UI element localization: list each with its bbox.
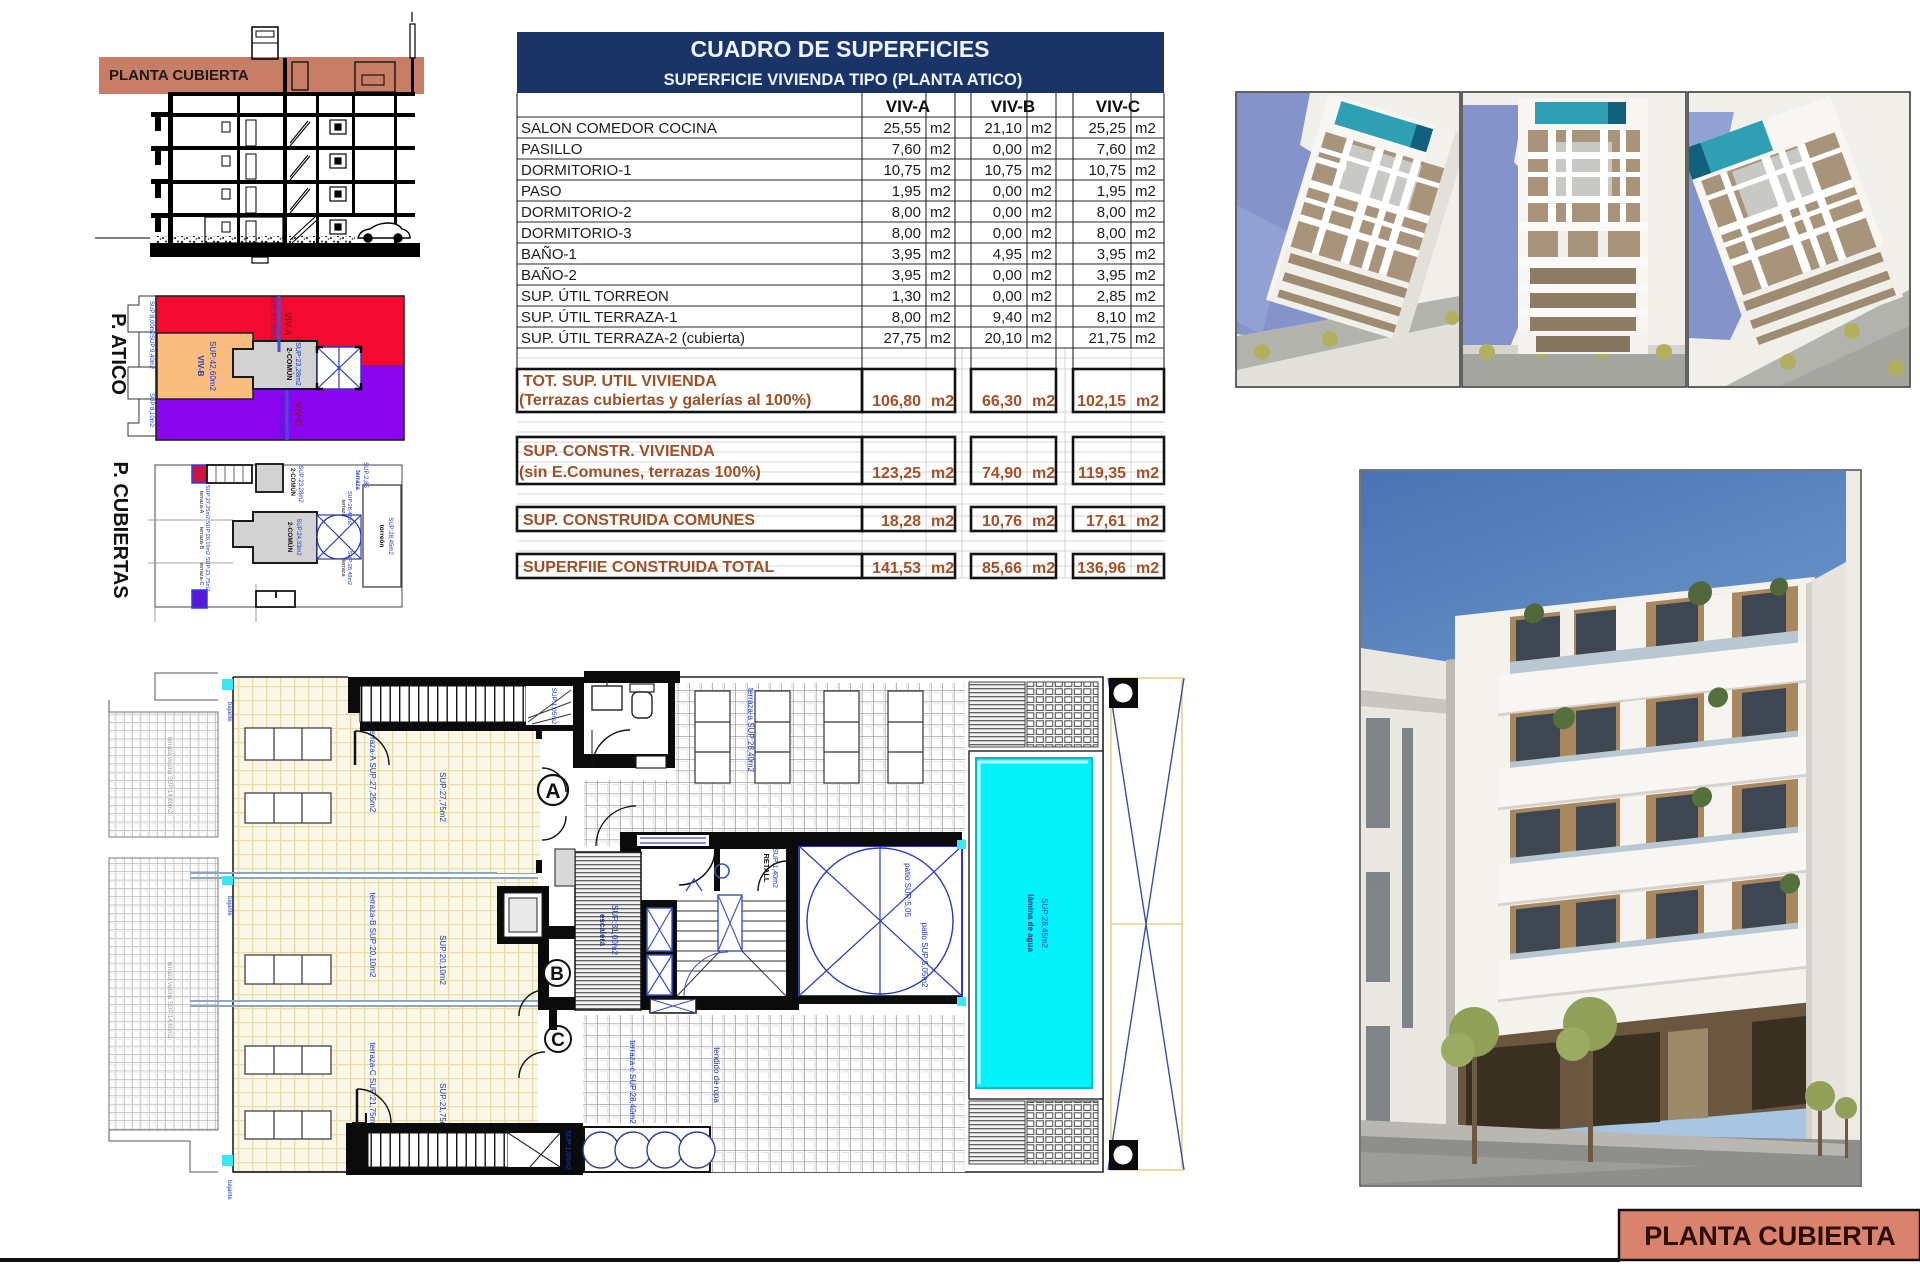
- svg-text:4,95: 4,95: [993, 246, 1022, 263]
- svg-text:SUP:1,05m2: SUP:1,05m2: [564, 1130, 571, 1170]
- svg-text:21,75: 21,75: [1088, 330, 1126, 347]
- svg-text:terraza-C SUP:21,75m2: terraza-C SUP:21,75m2: [368, 1042, 377, 1128]
- svg-text:SUP:63,05m2: SUP:63,05m2: [269, 296, 276, 340]
- svg-text:8,00: 8,00: [892, 225, 921, 242]
- svg-text:10,75: 10,75: [883, 162, 921, 179]
- svg-text:SUP. CONSTRUIDA COMUNES: SUP. CONSTRUIDA COMUNES: [523, 512, 755, 529]
- svg-text:SUP:27,75m2: SUP:27,75m2: [438, 772, 447, 822]
- svg-text:terraza: terraza: [340, 559, 346, 577]
- svg-text:m2: m2: [1135, 330, 1156, 347]
- svg-text:SUP. CONSTR. VIVIENDA: SUP. CONSTR. VIVIENDA: [523, 443, 715, 460]
- svg-text:m2: m2: [1032, 560, 1055, 577]
- svg-text:m2: m2: [1032, 465, 1055, 482]
- svg-text:m2: m2: [1031, 246, 1052, 263]
- svg-text:SUP:21,75m2: SUP:21,75m2: [204, 557, 210, 591]
- svg-text:8,00: 8,00: [892, 309, 921, 326]
- svg-text:27,75: 27,75: [883, 330, 921, 347]
- svg-text:SUP. ÚTIL TERRAZA-1: SUP. ÚTIL TERRAZA-1: [521, 309, 677, 326]
- svg-text:PASO: PASO: [521, 183, 562, 200]
- svg-text:VIV-C: VIV-C: [293, 402, 303, 426]
- svg-text:terraza vecina SUP:14,60m2: terraza vecina SUP:14,60m2: [166, 737, 172, 814]
- svg-text:DORMITORIO-3: DORMITORIO-3: [521, 225, 632, 242]
- svg-text:m2: m2: [930, 309, 951, 326]
- svg-text:1,30: 1,30: [892, 288, 921, 305]
- svg-text:DORMITORIO-2: DORMITORIO-2: [521, 204, 632, 221]
- svg-text:m2: m2: [930, 204, 951, 221]
- svg-text:(sin E.Comunes, terrazas 100%): (sin E.Comunes, terrazas 100%): [519, 464, 761, 481]
- svg-text:m2: m2: [930, 246, 951, 263]
- svg-text:0,00: 0,00: [993, 225, 1022, 242]
- svg-text:VIV-A: VIV-A: [886, 97, 930, 116]
- svg-text:C: C: [551, 1030, 565, 1051]
- svg-text:74,90: 74,90: [982, 465, 1022, 482]
- svg-text:bajante: bajante: [226, 702, 232, 722]
- svg-text:m2: m2: [930, 330, 951, 347]
- svg-text:8,00: 8,00: [892, 204, 921, 221]
- svg-text:17,61: 17,61: [1086, 513, 1126, 530]
- svg-text:20,10: 20,10: [984, 330, 1022, 347]
- svg-text:m2: m2: [1031, 267, 1052, 284]
- svg-text:m2: m2: [1032, 513, 1055, 530]
- svg-text:3,95: 3,95: [1097, 267, 1126, 284]
- svg-text:m2: m2: [1031, 204, 1052, 221]
- svg-text:SUPERFIIE CONSTRUIDA TOTAL: SUPERFIIE CONSTRUIDA TOTAL: [523, 559, 774, 576]
- svg-text:0,00: 0,00: [993, 141, 1022, 158]
- svg-text:m2: m2: [1135, 183, 1156, 200]
- svg-text:BAÑO-2: BAÑO-2: [521, 267, 577, 284]
- svg-text:SUP:1,40m2: SUP:1,40m2: [771, 848, 778, 888]
- svg-text:TOT. SUP. UTIL VIVIENDA: TOT. SUP. UTIL VIVIENDA: [523, 373, 717, 390]
- svg-text:m2: m2: [1135, 120, 1156, 137]
- svg-text:25,25: 25,25: [1088, 120, 1126, 137]
- svg-text:m2: m2: [1031, 225, 1052, 242]
- svg-text:1,95: 1,95: [1097, 183, 1126, 200]
- svg-text:terraza-A SUP:27,25m2: terraza-A SUP:27,25m2: [368, 728, 377, 813]
- svg-text:VIV-A: VIV-A: [283, 312, 293, 336]
- svg-text:0,00: 0,00: [993, 183, 1022, 200]
- svg-text:3,95: 3,95: [1097, 246, 1126, 263]
- svg-text:m2: m2: [1031, 162, 1052, 179]
- svg-text:m2: m2: [930, 288, 951, 305]
- svg-text:VIV-B: VIV-B: [196, 356, 205, 377]
- svg-text:85,66: 85,66: [982, 560, 1022, 577]
- svg-text:25,55: 25,55: [883, 120, 921, 137]
- svg-text:SUP:1,05m2: SUP:1,05m2: [550, 688, 557, 725]
- svg-text:m2: m2: [930, 162, 951, 179]
- svg-text:SUP:23,28m2: SUP:23,28m2: [294, 342, 301, 386]
- svg-text:m2: m2: [930, 267, 951, 284]
- svg-text:SUP:28,40m2: SUP:28,40m2: [346, 551, 352, 585]
- svg-text:m2: m2: [1031, 141, 1052, 158]
- svg-text:P. CUBIERTAS: P. CUBIERTAS: [109, 461, 131, 598]
- svg-text:SUP:28,45m2: SUP:28,45m2: [387, 517, 393, 555]
- svg-text:10,75: 10,75: [1088, 162, 1126, 179]
- svg-text:RETALL: RETALL: [762, 853, 771, 882]
- svg-text:m2: m2: [1031, 330, 1052, 347]
- svg-text:VIV-C: VIV-C: [1096, 97, 1140, 116]
- svg-text:7,60: 7,60: [892, 141, 921, 158]
- svg-text:bajante: bajante: [226, 1180, 232, 1200]
- svg-text:9,40: 9,40: [993, 309, 1022, 326]
- svg-text:123,25: 123,25: [872, 465, 921, 482]
- svg-text:3,95: 3,95: [892, 267, 921, 284]
- svg-text:0,00: 0,00: [993, 288, 1022, 305]
- svg-text:m2: m2: [1135, 141, 1156, 158]
- svg-text:0,00: 0,00: [993, 204, 1022, 221]
- svg-text:SUP:2,85: SUP:2,85: [362, 462, 368, 488]
- svg-text:terraza-C: terraza-C: [198, 563, 204, 586]
- svg-text:SUP:23,28m2: SUP:23,28m2: [297, 465, 303, 503]
- svg-text:8,00: 8,00: [1097, 225, 1126, 242]
- svg-text:m2: m2: [931, 513, 954, 530]
- svg-text:119,35: 119,35: [1078, 465, 1126, 482]
- svg-text:PLANTA CUBIERTA: PLANTA CUBIERTA: [1644, 1221, 1895, 1251]
- svg-text:patio SUP:5,05: patio SUP:5,05: [903, 863, 912, 917]
- svg-text:torreón: torreón: [378, 525, 385, 548]
- svg-text:lámina de agua: lámina de agua: [1026, 894, 1035, 952]
- svg-text:SUP. ÚTIL TERRAZA-2 (cubierta): SUP. ÚTIL TERRAZA-2 (cubierta): [521, 330, 745, 347]
- svg-text:terraza-a SUP:28,40m2: terraza-a SUP:28,40m2: [746, 688, 755, 773]
- svg-text:m2: m2: [1135, 309, 1156, 326]
- svg-text:m2: m2: [930, 141, 951, 158]
- svg-text:8,00: 8,00: [1097, 204, 1126, 221]
- svg-text:terraza-B SUP:20,10m2: terraza-B SUP:20,10m2: [368, 893, 377, 978]
- svg-text:m2: m2: [1135, 162, 1156, 179]
- svg-text:m2: m2: [1135, 246, 1156, 263]
- svg-text:m2: m2: [1135, 267, 1156, 284]
- svg-text:m2: m2: [1136, 513, 1159, 530]
- svg-text:SUP:20,10m2: SUP:20,10m2: [204, 521, 210, 555]
- svg-text:m2: m2: [930, 120, 951, 137]
- svg-text:m2: m2: [1031, 288, 1052, 305]
- svg-text:SUPERFICIE VIVIENDA TIPO (PLA: SUPERFICIE VIVIENDA TIPO (PLANTA ATICO): [664, 71, 1023, 89]
- svg-text:SUP:9,40m2: SUP:9,40m2: [148, 335, 154, 370]
- svg-text:2-COMÚN: 2-COMÚN: [286, 522, 295, 553]
- svg-text:136,96: 136,96: [1077, 560, 1126, 577]
- svg-text:SUP:8,10m2: SUP:8,10m2: [148, 393, 154, 428]
- svg-text:SUP:60,40m2: SUP:60,40m2: [277, 394, 284, 438]
- svg-text:106,80: 106,80: [872, 393, 921, 410]
- svg-text:SUP:27,25m2: SUP:27,25m2: [204, 485, 210, 519]
- svg-text:21,10: 21,10: [984, 120, 1022, 137]
- svg-text:m2: m2: [931, 393, 954, 410]
- svg-text:66,30: 66,30: [982, 393, 1022, 410]
- svg-text:SUP:20,10m2: SUP:20,10m2: [438, 935, 447, 985]
- svg-text:terraza vecina SUP:14,60m2: terraza vecina SUP:14,60m2: [166, 962, 172, 1039]
- svg-text:141,53: 141,53: [872, 560, 921, 577]
- svg-text:SUP:28,40m2: SUP:28,40m2: [346, 491, 352, 525]
- svg-text:m2: m2: [1031, 120, 1052, 137]
- svg-text:DORMITORIO-1: DORMITORIO-1: [521, 162, 632, 179]
- svg-text:m2: m2: [1031, 309, 1052, 326]
- svg-text:PASILLO: PASILLO: [521, 141, 582, 158]
- svg-text:10,76: 10,76: [982, 513, 1022, 530]
- svg-text:terraza: terraza: [354, 470, 360, 490]
- svg-text:m2: m2: [930, 183, 951, 200]
- svg-text:m2: m2: [931, 560, 954, 577]
- svg-text:m2: m2: [1032, 393, 1055, 410]
- svg-text:escalera: escalera: [598, 914, 607, 947]
- svg-text:SUP:8,00m2: SUP:8,00m2: [148, 301, 154, 336]
- svg-text:CUADRO DE SUPERFICIES: CUADRO DE SUPERFICIES: [690, 36, 989, 62]
- svg-text:SUP. ÚTIL TORREON: SUP. ÚTIL TORREON: [521, 288, 669, 305]
- svg-text:P. ATICO: P. ATICO: [107, 313, 129, 395]
- svg-text:A: A: [545, 780, 560, 803]
- svg-text:SALON COMEDOR COCINA: SALON COMEDOR COCINA: [521, 120, 717, 137]
- svg-text:m2: m2: [1136, 560, 1159, 577]
- svg-text:18,28: 18,28: [881, 513, 921, 530]
- svg-text:VIV-B: VIV-B: [991, 97, 1035, 116]
- svg-text:SUP:31,00m2: SUP:31,00m2: [610, 905, 619, 955]
- svg-text:2-COMÚN: 2-COMÚN: [289, 468, 296, 496]
- svg-text:SUP:28,45m2: SUP:28,45m2: [1040, 898, 1049, 948]
- svg-text:1,95: 1,95: [892, 183, 921, 200]
- svg-text:0,00: 0,00: [993, 267, 1022, 284]
- svg-text:terraza: terraza: [340, 499, 346, 517]
- svg-text:m2: m2: [931, 465, 954, 482]
- svg-text:PLANTA CUBIERTA: PLANTA CUBIERTA: [109, 67, 249, 84]
- svg-text:terraza-c SUP:28,40m2: terraza-c SUP:28,40m2: [628, 1040, 637, 1124]
- svg-text:8,10: 8,10: [1097, 309, 1126, 326]
- svg-text:patio SUP:5,05m2: patio SUP:5,05m2: [920, 923, 929, 988]
- svg-text:2-COMÚN: 2-COMÚN: [285, 348, 294, 381]
- svg-text:10,75: 10,75: [984, 162, 1022, 179]
- svg-text:3,95: 3,95: [892, 246, 921, 263]
- svg-text:m2: m2: [1135, 288, 1156, 305]
- svg-text:m2: m2: [1135, 204, 1156, 221]
- svg-text:m2: m2: [1135, 225, 1156, 242]
- svg-text:2,85: 2,85: [1097, 288, 1126, 305]
- svg-text:m2: m2: [1136, 465, 1159, 482]
- svg-text:BAÑO-1: BAÑO-1: [521, 246, 577, 263]
- svg-text:terraza-A: terraza-A: [198, 491, 204, 514]
- svg-text:B: B: [550, 964, 564, 985]
- svg-text:m2: m2: [930, 225, 951, 242]
- svg-text:(Terrazas cubiertas y galerías: (Terrazas cubiertas y galerías al 100%): [519, 392, 811, 409]
- svg-text:m2: m2: [1136, 393, 1159, 410]
- svg-text:terraza-B: terraza-B: [198, 527, 204, 550]
- svg-text:102,15: 102,15: [1077, 393, 1126, 410]
- svg-text:bajante: bajante: [226, 896, 232, 916]
- svg-text:SUP:42,60m2: SUP:42,60m2: [208, 341, 217, 391]
- svg-text:SUP:24,33m2: SUP:24,33m2: [295, 518, 301, 556]
- svg-text:m2: m2: [1031, 183, 1052, 200]
- svg-text:7,60: 7,60: [1097, 141, 1126, 158]
- svg-text:tendido de ropa: tendido de ropa: [712, 1047, 721, 1103]
